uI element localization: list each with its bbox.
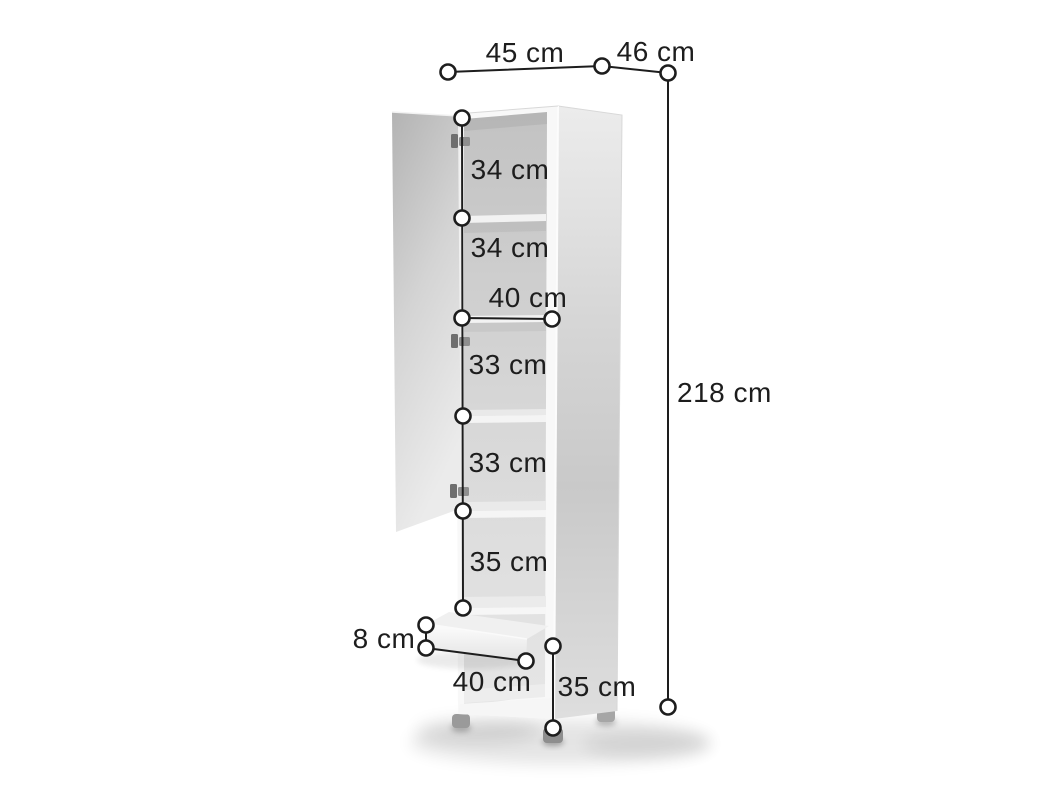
label-drawer-height: 8 cm [353,623,416,654]
furniture-dimension-diagram: 45 cm 46 cm 218 cm 34 cm 34 cm 40 cm 33 … [0,0,1049,786]
shelf [464,415,546,423]
dimension-endpoint [456,504,471,519]
label-section-2: 34 cm [471,232,550,263]
label-section-3: 33 cm [469,349,548,380]
dimension-line-interior-width [462,318,552,319]
shelf-top-surface [464,409,546,416]
dimension-endpoint [456,409,471,424]
dimension-endpoint [595,59,610,74]
dimension-endpoint [419,641,434,656]
dimension-endpoint [455,311,470,326]
label-interior-width: 40 cm [489,282,568,313]
shelf-shadow [464,322,546,332]
dimension-endpoint [546,721,561,736]
dimension-endpoint [455,111,470,126]
label-top-depth: 46 cm [617,36,696,67]
diagram-canvas: 45 cm 46 cm 218 cm 34 cm 34 cm 40 cm 33 … [0,0,1049,786]
dimension-endpoint [419,618,434,633]
label-section-5: 35 cm [470,546,549,577]
dimension-endpoint [545,312,560,327]
label-top-width: 45 cm [486,37,565,68]
shelf-top-surface [464,596,546,608]
label-section-4: 33 cm [469,447,548,478]
label-total-height: 218 cm [677,377,772,408]
side-panel [554,106,622,719]
door-panel [392,112,462,532]
shelf-top-surface [464,501,546,511]
dimension-endpoint [456,601,471,616]
label-bottom-height: 35 cm [558,671,637,702]
dimension-endpoint [661,66,676,81]
dimension-line-top-depth [602,66,668,73]
dimension-line-shelf-sections [462,118,463,608]
label-drawer-width: 40 cm [453,666,532,697]
dimension-endpoint [546,639,561,654]
label-section-1: 34 cm [471,154,550,185]
shelf [464,510,546,518]
shelf [464,607,546,615]
shadow-right [584,730,712,758]
front-left-foot [452,714,470,728]
dimension-endpoint [455,211,470,226]
dimension-endpoint [441,65,456,80]
shadow-left [416,718,540,742]
dimension-endpoint [661,700,676,715]
